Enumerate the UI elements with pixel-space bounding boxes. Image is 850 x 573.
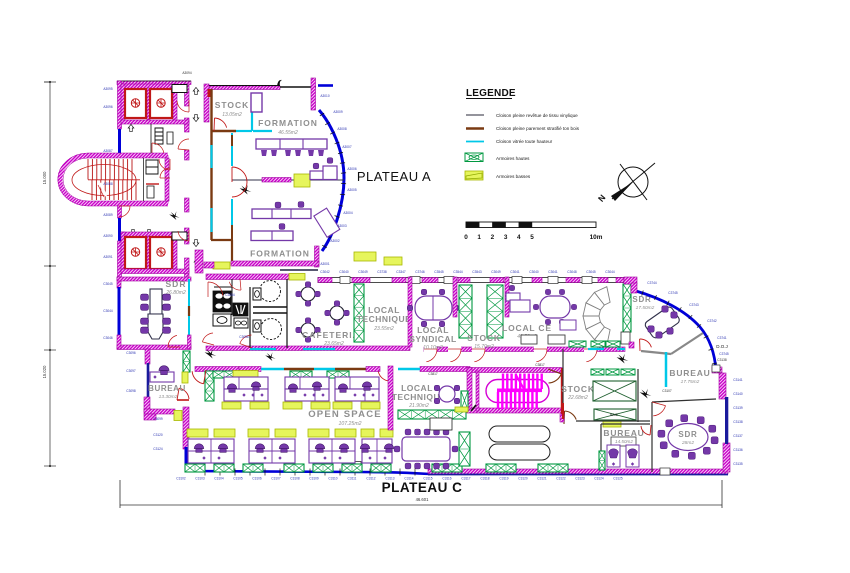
- svg-text:A3087: A3087: [103, 149, 112, 153]
- svg-text:C3137: C3137: [733, 434, 743, 438]
- svg-text:C3124: C3124: [594, 477, 604, 481]
- svg-text:C3745: C3745: [668, 291, 678, 295]
- svg-text:C3544: C3544: [453, 270, 463, 274]
- svg-text:C3113: C3113: [385, 477, 394, 481]
- svg-text:28m2: 28m2: [681, 440, 694, 446]
- svg-text:C3103: C3103: [195, 477, 205, 481]
- svg-text:STOCK: STOCK: [467, 333, 501, 343]
- svg-text:46.601: 46.601: [416, 497, 429, 502]
- svg-text:A3010: A3010: [320, 94, 329, 98]
- svg-text:C3099: C3099: [153, 417, 163, 421]
- svg-text:C3040: C3040: [529, 270, 539, 274]
- svg-text:C3045: C3045: [103, 282, 113, 286]
- svg-text:C3745: C3745: [719, 352, 729, 356]
- svg-text:C3136: C3136: [733, 448, 743, 452]
- svg-text:C3817: C3817: [535, 363, 545, 367]
- svg-text:C3107: C3107: [662, 389, 672, 393]
- svg-text:C3045: C3045: [586, 270, 596, 274]
- svg-text:C3042: C3042: [320, 270, 330, 274]
- svg-text:46.55m2: 46.55m2: [278, 130, 298, 136]
- svg-text:C3141: C3141: [733, 378, 743, 382]
- svg-text:PLATEAU A: PLATEAU A: [357, 169, 431, 184]
- svg-text:C3120: C3120: [518, 477, 528, 481]
- svg-text:C3347: C3347: [396, 270, 406, 274]
- svg-text:C3044: C3044: [605, 270, 615, 274]
- svg-text:107.25m2: 107.25m2: [338, 421, 361, 427]
- svg-text:SYNDICAL: SYNDICAL: [409, 334, 456, 344]
- svg-text:PLATEAU C: PLATEAU C: [382, 480, 463, 495]
- svg-text:C3744: C3744: [647, 281, 657, 285]
- svg-text:C3741: C3741: [717, 336, 727, 340]
- svg-text:C3116: C3116: [442, 477, 451, 481]
- svg-text:C3114: C3114: [404, 477, 413, 481]
- svg-text:A3089: A3089: [103, 213, 112, 217]
- svg-text:C3112: C3112: [366, 477, 375, 481]
- svg-text:C3097: C3097: [126, 369, 136, 373]
- svg-text:C3110: C3110: [328, 477, 337, 481]
- svg-text:BAIE: BAIE: [610, 413, 618, 417]
- svg-text:C3738: C3738: [377, 270, 387, 274]
- svg-text:OPEN SPACE: OPEN SPACE: [308, 409, 382, 420]
- svg-text:0: 0: [464, 234, 468, 241]
- svg-text:A3096: A3096: [103, 105, 112, 109]
- svg-text:14.50m2: 14.50m2: [615, 439, 633, 444]
- svg-text:CAFETERIA: CAFETERIA: [302, 330, 360, 340]
- svg-text:SDR: SDR: [678, 430, 697, 439]
- svg-text:SDR: SDR: [166, 279, 187, 289]
- svg-text:BUREAU: BUREAU: [148, 384, 186, 393]
- svg-text:LEGENDE: LEGENDE: [466, 88, 516, 99]
- svg-text:C3139: C3139: [733, 406, 743, 410]
- svg-text:17.75m2: 17.75m2: [681, 379, 700, 385]
- svg-text:BUREAU: BUREAU: [669, 368, 710, 378]
- svg-text:C3048: C3048: [567, 270, 577, 274]
- svg-text:10.10m2: 10.10m2: [423, 345, 443, 351]
- svg-text:C3040: C3040: [339, 270, 349, 274]
- svg-text:21.90m2: 21.90m2: [408, 403, 429, 409]
- svg-text:C3118: C3118: [480, 477, 489, 481]
- svg-text:C3041: C3041: [510, 270, 520, 274]
- svg-text:C3049: C3049: [491, 270, 501, 274]
- svg-text:C3123: C3123: [575, 477, 585, 481]
- svg-text:C3115: C3115: [423, 477, 432, 481]
- svg-text:C3044: C3044: [103, 309, 113, 313]
- svg-text:A3091: A3091: [103, 255, 112, 259]
- svg-text:C3138: C3138: [717, 358, 727, 362]
- svg-text:A3090: A3090: [103, 234, 112, 238]
- svg-text:LOCAL CE: LOCAL CE: [502, 323, 552, 333]
- svg-text:C3124: C3124: [153, 447, 163, 451]
- svg-text:Armoires hautes: Armoires hautes: [496, 156, 530, 161]
- svg-text:C3107: C3107: [271, 477, 281, 481]
- svg-text:Cloison pleine parement strati: Cloison pleine parement stratifié ton bo…: [496, 126, 580, 131]
- svg-text:C3046: C3046: [103, 336, 113, 340]
- svg-text:FORMATION: FORMATION: [258, 118, 318, 128]
- svg-text:C3119: C3119: [499, 477, 508, 481]
- svg-text:A3094: A3094: [182, 71, 191, 75]
- svg-text:A3004: A3004: [343, 211, 352, 215]
- svg-text:C3121: C3121: [537, 477, 547, 481]
- svg-text:FORMATION: FORMATION: [250, 249, 310, 259]
- svg-text:15.000: 15.000: [42, 171, 47, 184]
- svg-text:A3095: A3095: [103, 87, 112, 91]
- svg-text:2: 2: [491, 234, 495, 241]
- svg-text:17.50m2: 17.50m2: [636, 305, 655, 311]
- svg-text:A3005: A3005: [347, 188, 356, 192]
- svg-text:1: 1: [477, 234, 481, 241]
- svg-text:C3117: C3117: [461, 477, 470, 481]
- svg-text:C3545: C3545: [434, 270, 444, 274]
- svg-text:STOCK: STOCK: [561, 384, 595, 394]
- svg-text:3: 3: [504, 234, 508, 241]
- svg-text:A3001: A3001: [320, 262, 329, 266]
- svg-text:A3009: A3009: [333, 110, 342, 114]
- svg-text:A3006: A3006: [347, 167, 356, 171]
- svg-text:C3049: C3049: [358, 270, 368, 274]
- svg-text:C3743: C3743: [689, 303, 699, 307]
- svg-text:C3109: C3109: [309, 477, 319, 481]
- svg-text:A3088: A3088: [103, 182, 112, 186]
- svg-text:A3007: A3007: [342, 145, 351, 149]
- svg-text:C3111: C3111: [348, 477, 357, 481]
- svg-text:C3140: C3140: [733, 392, 743, 396]
- svg-text:C3041: C3041: [548, 270, 558, 274]
- svg-text:C3138: C3138: [733, 420, 743, 424]
- svg-text:STOCK: STOCK: [215, 100, 250, 110]
- svg-text:C3108: C3108: [290, 477, 300, 481]
- svg-text:C3054: C3054: [225, 293, 235, 297]
- svg-text:10m: 10m: [590, 234, 603, 241]
- svg-text:C3135: C3135: [733, 462, 743, 466]
- svg-text:C3056: C3056: [239, 335, 249, 339]
- svg-text:13.05m2: 13.05m2: [222, 112, 242, 118]
- svg-text:C3106: C3106: [252, 477, 262, 481]
- svg-text:15.020: 15.020: [42, 365, 47, 378]
- svg-text:A3003: A3003: [337, 224, 346, 228]
- svg-text:C3746: C3746: [415, 270, 425, 274]
- svg-text:C3104: C3104: [214, 477, 224, 481]
- svg-text:5: 5: [530, 234, 534, 241]
- svg-text:C3817: C3817: [428, 372, 438, 376]
- svg-text:4: 4: [517, 234, 521, 241]
- svg-text:15.70m2: 15.70m2: [474, 344, 494, 350]
- svg-text:23.65m2: 23.65m2: [323, 341, 344, 347]
- svg-text:23.55m2: 23.55m2: [373, 326, 394, 332]
- svg-text:C3742: C3742: [707, 319, 717, 323]
- svg-text:BUREAU: BUREAU: [603, 428, 644, 438]
- svg-text:A3008: A3008: [337, 127, 346, 131]
- svg-text:C3543: C3543: [472, 270, 482, 274]
- svg-text:C3102: C3102: [176, 477, 186, 481]
- svg-text:C3096: C3096: [126, 351, 136, 355]
- svg-text:C3122: C3122: [556, 477, 566, 481]
- svg-text:Cloison pleine revêtue de tiss: Cloison pleine revêtue de tissu vinyliqu…: [496, 113, 578, 118]
- svg-text:TECHNIQUE: TECHNIQUE: [357, 314, 412, 324]
- svg-text:C3105: C3105: [233, 477, 243, 481]
- svg-text:22.68m2: 22.68m2: [567, 395, 588, 401]
- svg-text:C3098: C3098: [126, 389, 136, 393]
- svg-text:Cloison vitrée toute hauteur: Cloison vitrée toute hauteur: [496, 139, 553, 144]
- svg-text:A3002: A3002: [330, 239, 339, 243]
- svg-text:Armoires basses: Armoires basses: [496, 174, 531, 179]
- svg-text:D.O.J: D.O.J: [716, 344, 728, 349]
- svg-text:C3125: C3125: [613, 477, 623, 481]
- svg-text:13.30m2: 13.30m2: [159, 394, 178, 400]
- svg-text:C3120: C3120: [153, 433, 163, 437]
